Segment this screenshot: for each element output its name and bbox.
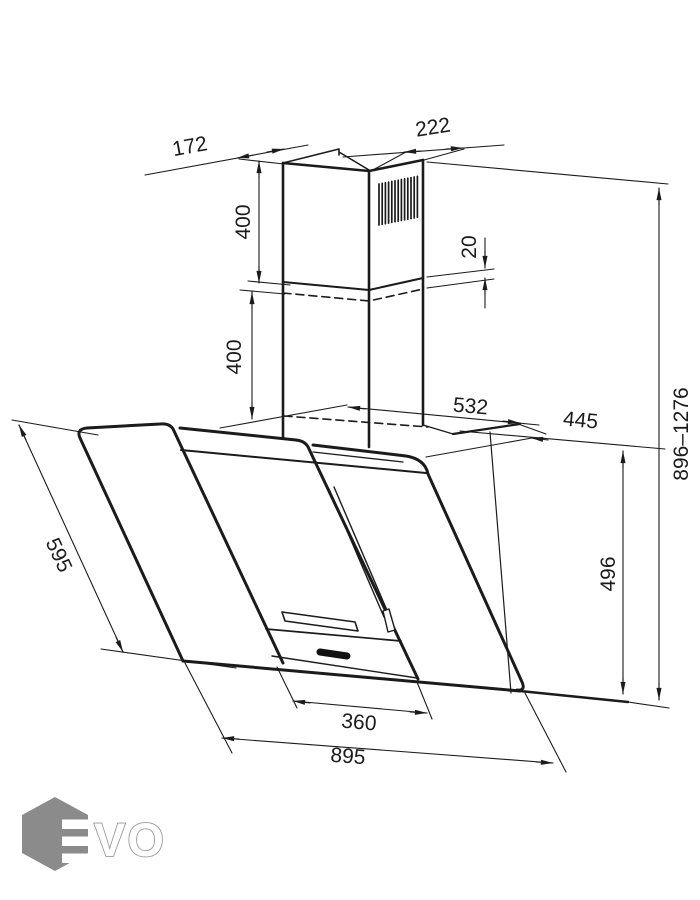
dim-label-lower-duct-height: 400 — [223, 339, 246, 374]
dim-label-duct-overlap: 20 — [458, 235, 481, 258]
logo-e-bars — [62, 820, 91, 864]
hidden-joint-line — [283, 289, 423, 301]
dim-532 — [348, 407, 546, 434]
control-switch — [320, 652, 347, 656]
dim-label-chimney-width: 222 — [414, 113, 452, 141]
logo-vo-text: VO — [94, 813, 166, 866]
handle-recess — [282, 612, 358, 631]
chimney-duct — [283, 149, 423, 447]
left-glass-panel — [79, 424, 283, 663]
dim-label-right-side-height: 496 — [597, 556, 620, 591]
dim-label-upper-duct-height: 400 — [232, 204, 255, 239]
hood-body — [79, 424, 669, 708]
dim-label-handle-width: 360 — [340, 710, 377, 736]
bottom-band-edge — [266, 629, 401, 641]
dimension-lines — [12, 145, 668, 772]
dim-label-height-range: 896–1276 — [670, 387, 693, 480]
dim-label-chimney-depth: 172 — [170, 132, 209, 161]
bottom-front-edge — [183, 661, 520, 691]
dim-445 — [426, 431, 665, 457]
technical-drawing-page: 172 222 400 20 400 532 445 896–1276 595 … — [0, 0, 700, 900]
dim-label-glass-slant-length: 595 — [41, 534, 77, 575]
dim-label-top-depth: 445 — [562, 407, 599, 433]
evo-logo: VO — [22, 797, 166, 871]
dim-400-lower — [240, 290, 285, 419]
hidden-wall-edge — [284, 416, 428, 427]
dim-label-overall-width: 895 — [330, 744, 367, 770]
drawing-lines — [12, 145, 669, 772]
middle-glass-panel — [180, 428, 418, 679]
dim-label-bracket-width: 532 — [452, 394, 489, 420]
vent-grille-icon — [379, 176, 417, 225]
cooker-hood-dimension-drawing: 172 222 400 20 400 532 445 896–1276 595 … — [0, 0, 700, 900]
bottom-rear-edge — [520, 691, 628, 702]
